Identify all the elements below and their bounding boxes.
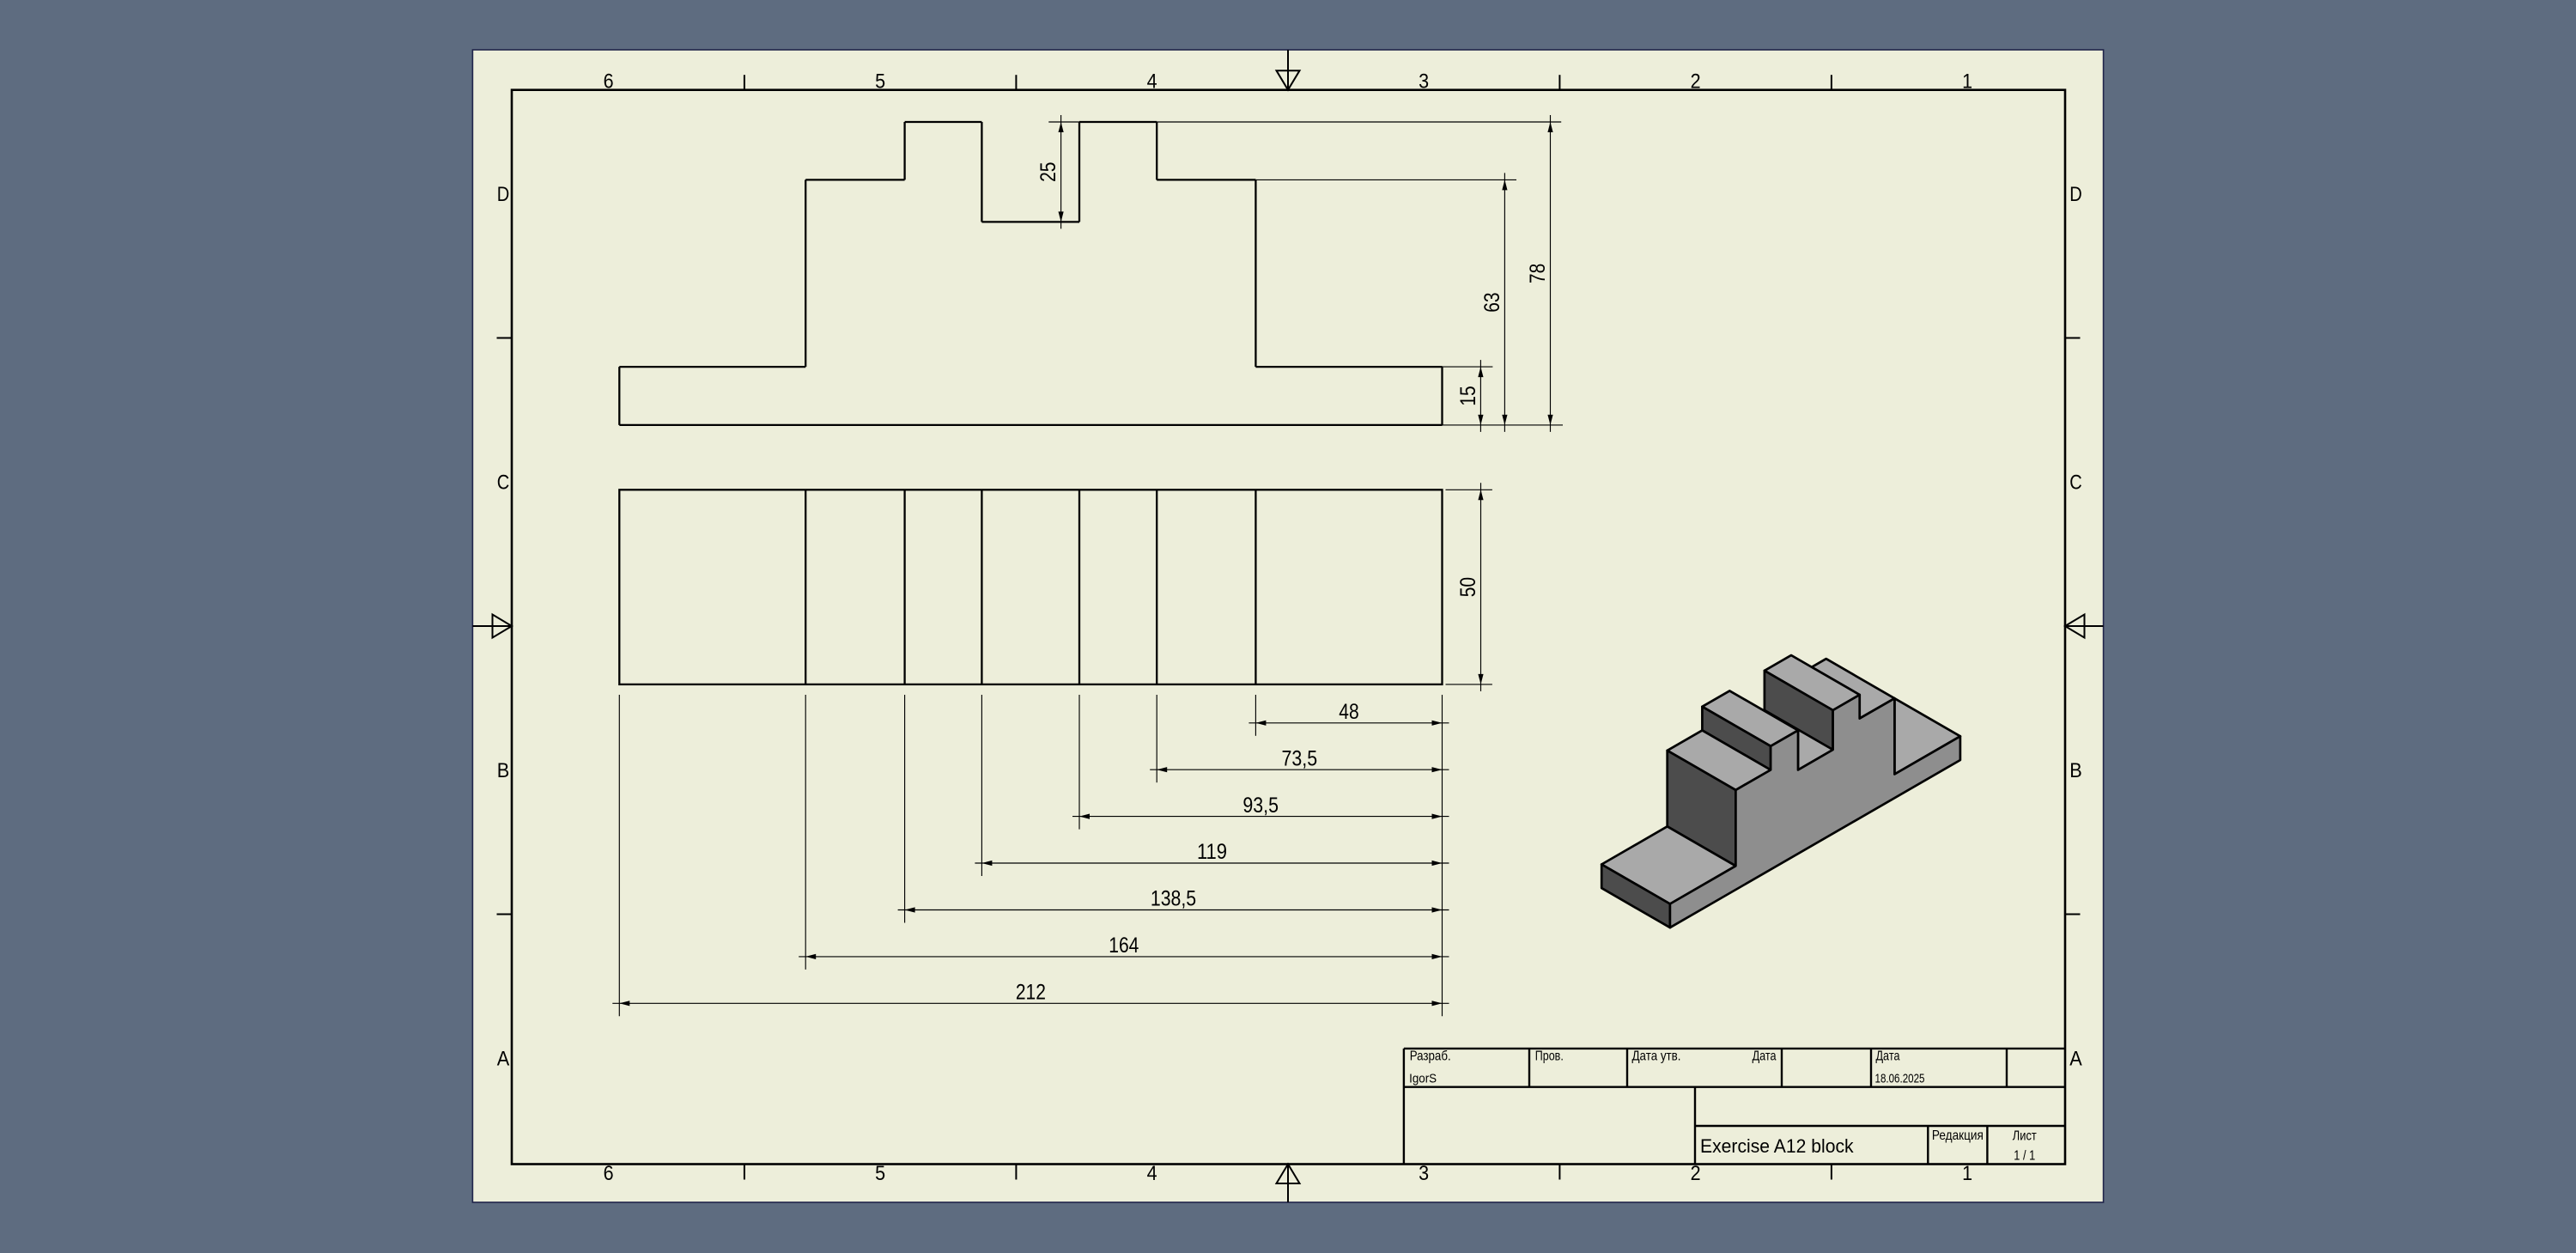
svg-text:Дата: Дата (1753, 1049, 1777, 1064)
svg-text:B: B (2069, 759, 2082, 782)
svg-text:D: D (2069, 183, 2082, 206)
svg-text:4: 4 (1147, 1162, 1157, 1185)
svg-text:25: 25 (1036, 162, 1060, 182)
svg-text:78: 78 (1526, 264, 1550, 283)
svg-text:Лист: Лист (2013, 1129, 2038, 1144)
svg-text:50: 50 (1456, 577, 1480, 597)
svg-text:A: A (2069, 1048, 2082, 1071)
svg-text:Пров.: Пров. (1535, 1049, 1564, 1064)
svg-text:3: 3 (1419, 70, 1429, 94)
svg-text:IgorS: IgorS (1409, 1072, 1437, 1086)
svg-text:5: 5 (875, 70, 885, 94)
svg-text:C: C (2069, 471, 2082, 495)
svg-text:48: 48 (1339, 700, 1358, 724)
svg-text:Exercise A12 block: Exercise A12 block (1700, 1135, 1855, 1157)
svg-text:138,5: 138,5 (1151, 887, 1196, 911)
svg-text:B: B (497, 759, 510, 782)
svg-text:Дата утв.: Дата утв. (1632, 1049, 1681, 1064)
svg-text:Редакция: Редакция (1932, 1128, 1984, 1143)
svg-text:6: 6 (604, 1162, 614, 1185)
svg-text:Дата: Дата (1876, 1049, 1900, 1064)
svg-text:73,5: 73,5 (1282, 746, 1318, 770)
svg-text:2: 2 (1691, 1162, 1701, 1185)
svg-text:15: 15 (1456, 386, 1480, 405)
svg-text:Разраб.: Разраб. (1410, 1049, 1451, 1064)
svg-text:119: 119 (1197, 840, 1227, 864)
svg-text:1: 1 (1962, 70, 1972, 94)
svg-text:A: A (497, 1048, 510, 1071)
svg-text:212: 212 (1016, 981, 1046, 1005)
svg-text:63: 63 (1480, 292, 1504, 312)
svg-text:164: 164 (1109, 934, 1139, 958)
svg-text:6: 6 (604, 70, 614, 94)
svg-text:4: 4 (1147, 70, 1157, 94)
svg-text:C: C (497, 471, 510, 495)
svg-text:1: 1 (1962, 1162, 1972, 1185)
svg-text:2: 2 (1691, 70, 1701, 94)
svg-text:D: D (497, 183, 510, 206)
svg-text:1 / 1: 1 / 1 (2014, 1149, 2035, 1164)
svg-text:3: 3 (1419, 1162, 1429, 1185)
svg-text:18.06.2025: 18.06.2025 (1875, 1072, 1925, 1086)
svg-text:5: 5 (875, 1162, 885, 1185)
svg-text:93,5: 93,5 (1242, 794, 1279, 818)
